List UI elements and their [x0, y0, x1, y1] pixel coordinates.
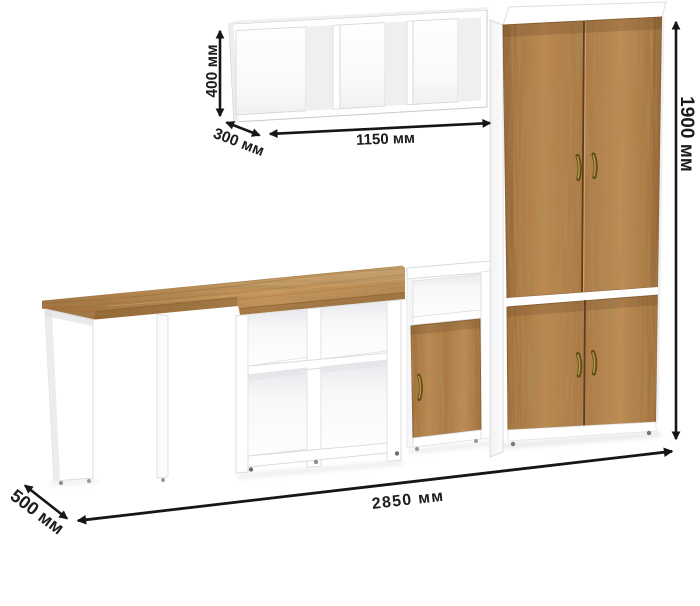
svg-text:1150 мм: 1150 мм [356, 130, 415, 149]
svg-text:400 мм: 400 мм [204, 44, 221, 97]
svg-text:1900 мм: 1900 мм [676, 96, 697, 172]
